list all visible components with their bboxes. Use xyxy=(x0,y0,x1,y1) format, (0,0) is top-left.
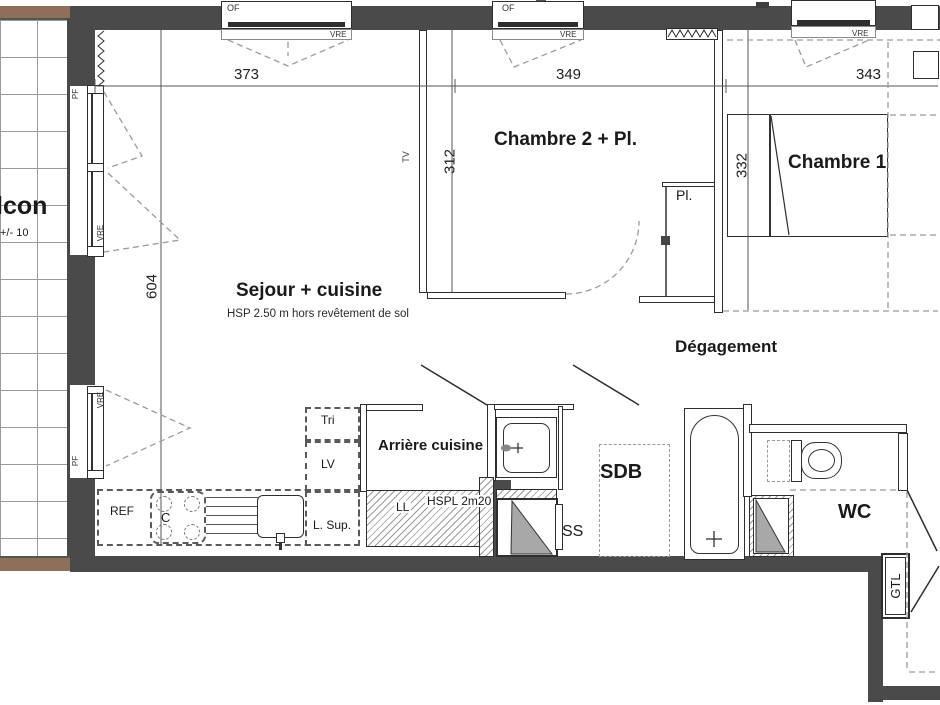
cooktop-burner-3 xyxy=(156,524,172,540)
washer-label: LL xyxy=(394,501,411,513)
insulation-strip-top xyxy=(666,28,718,40)
wall-ac-left xyxy=(360,404,367,492)
tri-label: Tri xyxy=(321,414,335,426)
wall-chambre1-left xyxy=(714,30,723,313)
toilet-bowl-inner xyxy=(808,449,835,472)
wc-reservation-box xyxy=(767,440,790,482)
gtl-label: GTL xyxy=(888,566,902,606)
wall-wc-right xyxy=(898,433,908,491)
wall-chambre2-bottom xyxy=(427,292,566,299)
shaft-wc-box xyxy=(753,498,789,554)
balcony-label: lcon xyxy=(0,194,47,219)
window-3-sill xyxy=(797,20,870,25)
wall-bottom-right xyxy=(868,686,940,700)
sink-faucet-stub xyxy=(279,543,282,550)
wall-ac-right xyxy=(487,404,496,481)
drainer xyxy=(206,497,258,539)
window-2-of-label: OF xyxy=(502,4,515,13)
room-label-chambre1: Chambre 1 xyxy=(788,153,886,172)
tv-label: TV xyxy=(400,143,412,171)
wall-below-placard xyxy=(639,296,721,303)
sink xyxy=(257,495,304,538)
bed xyxy=(727,114,888,237)
dim-chambre1-width: 343 xyxy=(856,67,881,82)
window-2-vre-label: VRE xyxy=(560,31,576,39)
window-left-2-pf-label: PF xyxy=(71,447,81,475)
linework-overlay xyxy=(0,0,940,705)
window-balcony-door-cap-mid xyxy=(87,163,104,172)
window-balcony-door-vre-label: VRE xyxy=(96,219,106,247)
window-1-sill xyxy=(228,22,345,27)
window-left-2-vre-label: VRE xyxy=(96,386,106,414)
dishwasher-label: LV xyxy=(321,458,335,470)
room-note-sejour: HSP 2.50 m hors revêtement de sol xyxy=(227,309,409,321)
dim-chambre2-depth: 312 xyxy=(443,142,458,182)
room-label-sdb: SDB xyxy=(600,462,642,482)
room-label-degagement: Dégagement xyxy=(675,338,777,355)
room-label-arriere-cuisine: Arrière cuisine xyxy=(378,438,483,453)
ref-label: REF xyxy=(110,505,134,517)
balcony-edge-top xyxy=(0,6,70,18)
window-left-2-cap-bot xyxy=(87,470,104,479)
room-label-placard: Pl. xyxy=(676,188,692,202)
lsup-label: L. Sup. xyxy=(313,519,351,531)
window-1-of-label: OF xyxy=(227,4,240,13)
dim-sejour-depth: 604 xyxy=(145,267,160,307)
wall-basinroom-right xyxy=(558,406,563,490)
sink-faucet xyxy=(276,533,285,543)
dim-chambre1-depth: 332 xyxy=(735,146,750,186)
room-label-chambre2: Chambre 2 + Pl. xyxy=(494,130,637,149)
balcony-edge-bottom xyxy=(0,558,70,571)
dim-sejour-width: 373 xyxy=(234,67,259,82)
wall-sdb-right xyxy=(743,404,752,497)
wall-bottom xyxy=(95,556,870,572)
window-balcony-door-pf-label: PF xyxy=(71,80,81,108)
cooktop-burner-2 xyxy=(184,496,200,512)
wall-left-2 xyxy=(70,255,95,385)
window-left-2-glass xyxy=(91,390,93,475)
bed-headboard-line xyxy=(769,114,771,237)
shaft-ss-box xyxy=(496,498,558,557)
placard-door-handle xyxy=(661,236,670,245)
ss-label: SS xyxy=(562,524,583,540)
hspl-label: HSPL 2m20 xyxy=(425,495,493,507)
cut-label-mark-1 xyxy=(756,2,769,8)
wall-sejour-chambre2 xyxy=(419,30,427,293)
window-1-vre-label: VRE xyxy=(330,31,346,39)
room-label-sejour: Sejour + cuisine xyxy=(236,281,382,300)
floor-plan: lcon +/- 10 OF OF VRE VRE VRE 373 349 34… xyxy=(0,0,940,705)
cooktop-burner-4 xyxy=(184,524,200,540)
wall-junction-box-1 xyxy=(911,5,939,30)
cooktop-label: C xyxy=(161,511,170,524)
insulation-zigzags xyxy=(98,30,716,86)
washbasin-bowl xyxy=(503,423,550,473)
room-label-wc: WC xyxy=(838,502,871,522)
balcony xyxy=(0,0,70,572)
wall-left-1 xyxy=(70,6,95,86)
wall-wc-top xyxy=(749,424,907,433)
bathtub-inner xyxy=(690,415,739,554)
wall-left-3 xyxy=(70,478,95,572)
balcony-level-label: +/- 10 xyxy=(0,228,28,239)
wall-ac-top xyxy=(366,404,423,411)
window-balcony-door-cap-top xyxy=(87,85,104,94)
balcony-tiles xyxy=(0,20,70,556)
dim-chambre2-width: 349 xyxy=(556,67,581,82)
window-balcony-door-cap-bot xyxy=(87,246,104,257)
window-2-sill xyxy=(498,22,578,27)
window-3-vre-label: VRE xyxy=(852,30,868,38)
wall-junction-box-2 xyxy=(913,51,939,79)
duct-hatch-vertical xyxy=(479,477,494,557)
